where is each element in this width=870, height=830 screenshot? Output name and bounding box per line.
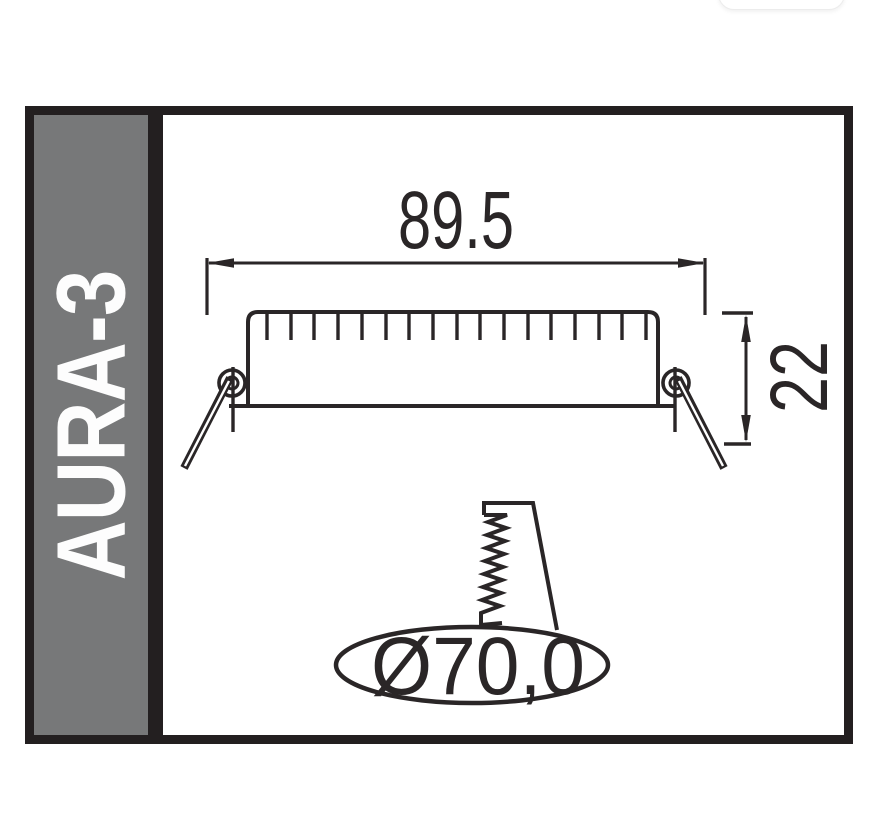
height-dimension: 22: [722, 313, 844, 444]
arrowhead-down-icon: [741, 415, 751, 442]
arrowhead-left-icon: [207, 258, 234, 268]
cutout-dimension-value: Ø70,0: [371, 621, 585, 712]
height-dimension-value: 22: [754, 341, 844, 413]
arrowhead-up-icon: [741, 315, 751, 342]
spring-clip-left: [184, 367, 245, 468]
drawing-canvas: 89.5: [163, 115, 844, 735]
product-sidebar: AURA-3: [34, 115, 163, 735]
spec-drawing-card: AURA-3 89.5: [25, 106, 853, 744]
screw-wedge: [481, 503, 557, 630]
clip-arm-left-core: [185, 381, 229, 466]
fixture-body: [248, 312, 658, 406]
technical-drawing: 89.5: [163, 115, 844, 735]
page: AURA-3 89.5: [0, 0, 870, 830]
floating-button-partial[interactable]: [718, 0, 845, 10]
width-dimension-value: 89.5: [398, 175, 514, 266]
heatsink-fins: [267, 312, 646, 340]
clip-arm-right-core: [679, 381, 723, 466]
product-name-label: AURA-3: [43, 270, 140, 580]
width-dimension: 89.5: [207, 175, 705, 315]
spring-clip-right: [663, 367, 724, 468]
cutout-detail: Ø70,0: [336, 503, 608, 712]
fixture-front-view: [184, 312, 724, 468]
arrowhead-right-icon: [678, 258, 705, 268]
